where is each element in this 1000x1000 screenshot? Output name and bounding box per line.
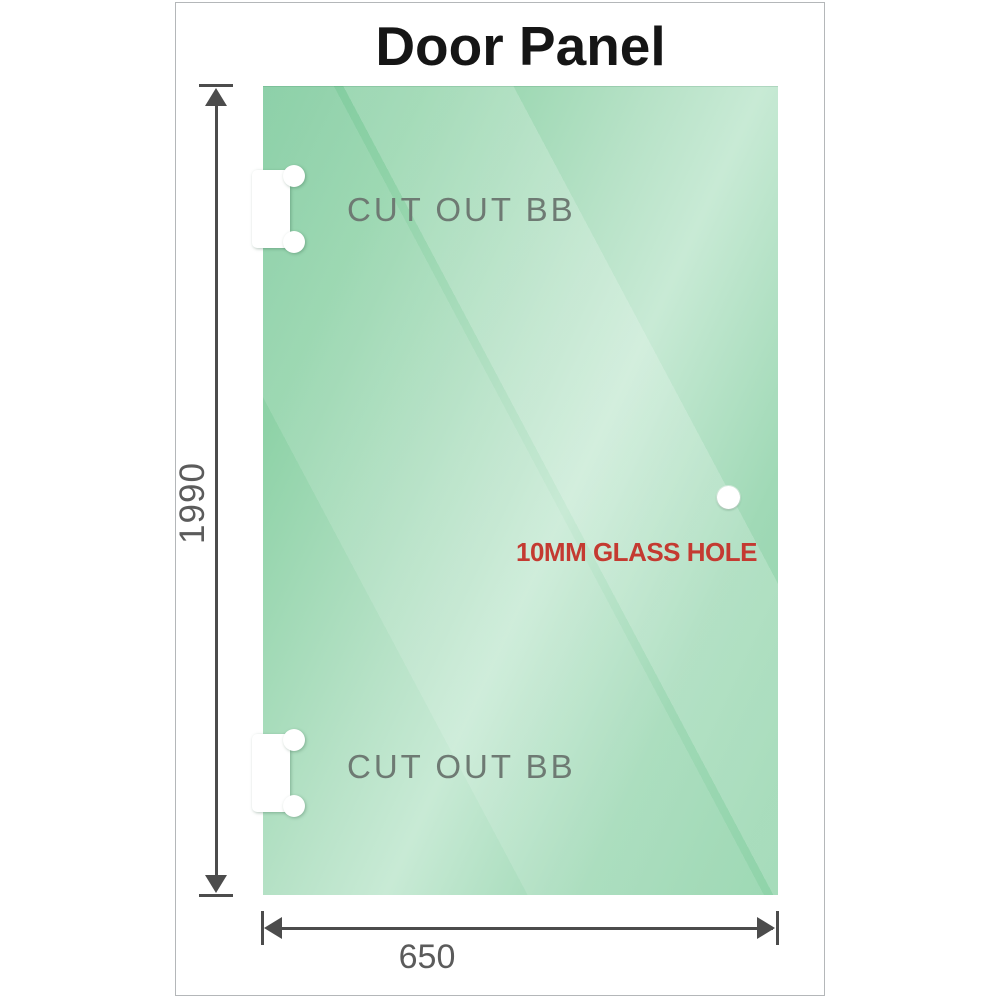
arrow-down-icon (205, 875, 227, 893)
hinge-cutout-bottom (252, 724, 310, 822)
glass-hole-label: 10MM GLASS HOLE (516, 537, 757, 568)
page-title: Door Panel (263, 14, 778, 78)
height-dim-cap-top (199, 84, 233, 87)
arrow-up-icon (205, 88, 227, 106)
door-panel-diagram: Door Panel CUT OUT BB CUT OUT BB 10MM GL… (0, 0, 1000, 1000)
hinge-cutout-shape-icon (252, 160, 310, 258)
arrow-left-icon (264, 917, 282, 939)
width-dim-label: 650 (377, 938, 477, 977)
arrow-right-icon (757, 917, 775, 939)
height-dim-cap-bottom (199, 894, 233, 897)
height-dim-line (215, 98, 218, 884)
hinge-cutout-shape-icon (252, 724, 310, 822)
hinge-cutout-top (252, 160, 310, 258)
width-dim-cap-right (776, 911, 779, 945)
glass-hole-icon (717, 486, 740, 509)
width-dim-line (268, 927, 773, 930)
cutout-bottom-label: CUT OUT BB (347, 748, 576, 786)
cutout-top-label: CUT OUT BB (347, 191, 576, 229)
height-dim-label: 1990 (173, 462, 213, 544)
